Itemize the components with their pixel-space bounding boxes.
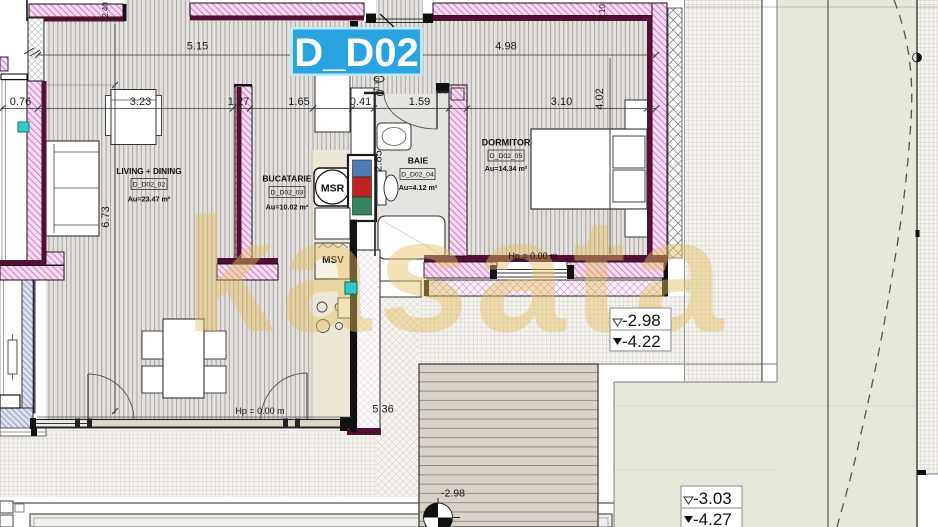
svg-text:Au=10.02 m²: Au=10.02 m² [266, 203, 309, 212]
svg-text:D_D02: D_D02 [294, 31, 419, 75]
svg-text:2.40: 2.40 [101, 2, 110, 18]
svg-text:-3.03: -3.03 [693, 489, 732, 508]
svg-text:Au=4.12 m²: Au=4.12 m² [399, 183, 438, 192]
svg-text:Au=23.47 m²: Au=23.47 m² [128, 195, 171, 204]
svg-text:-4.27: -4.27 [693, 510, 732, 527]
svg-text:LIVING + DINING: LIVING + DINING [116, 167, 181, 176]
svg-text:6.73: 6.73 [100, 206, 112, 227]
svg-text:-2.98: -2.98 [441, 488, 465, 500]
svg-text:2.10: 2.10 [598, 4, 607, 20]
svg-text:Hp = 0.00 m: Hp = 0.00 m [508, 251, 557, 261]
svg-text:BUCATARIE: BUCATARIE [262, 174, 312, 184]
svg-text:DORMITOR: DORMITOR [482, 138, 531, 148]
svg-text:4.98: 4.98 [495, 41, 516, 53]
svg-text:3.10: 3.10 [551, 96, 572, 108]
svg-text:5.36: 5.36 [372, 404, 393, 416]
svg-text:2.85: 2.85 [373, 150, 385, 171]
svg-text:Hp = 0.00 m: Hp = 0.00 m [235, 406, 284, 416]
svg-text:Au=14.34 m²: Au=14.34 m² [485, 164, 528, 173]
svg-text:1.65: 1.65 [288, 96, 309, 108]
svg-text:-4.22: -4.22 [622, 332, 661, 351]
svg-text:1.59: 1.59 [409, 96, 430, 108]
svg-text:D_D02_04: D_D02_04 [401, 172, 434, 179]
svg-text:3.23: 3.23 [130, 96, 151, 108]
svg-text:4.02: 4.02 [594, 88, 606, 109]
svg-text:-2.98: -2.98 [622, 311, 661, 330]
svg-text:5.15: 5.15 [187, 41, 208, 53]
svg-text:D_D02_03: D_D02_03 [271, 190, 304, 197]
svg-text:D_D02_05: D_D02_05 [490, 153, 523, 160]
svg-text:1.27: 1.27 [228, 96, 249, 108]
svg-text:0.76: 0.76 [10, 96, 31, 108]
svg-text:BAIE: BAIE [408, 156, 429, 166]
svg-text:D_D02_02: D_D02_02 [133, 182, 166, 189]
svg-text:0.41: 0.41 [350, 96, 371, 108]
svg-text:0.10: 0.10 [374, 77, 381, 90]
